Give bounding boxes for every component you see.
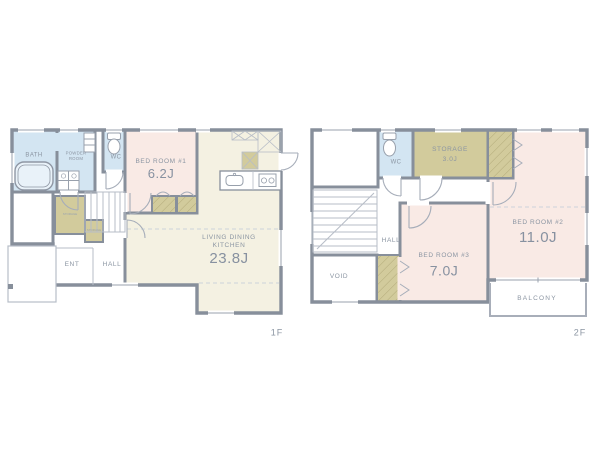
washing-machine-icon — [58, 171, 79, 190]
toilet-2f-icon — [383, 133, 396, 156]
room-storage — [413, 130, 488, 178]
hall-1f-label: HALL — [103, 261, 122, 269]
room-utility-space — [12, 192, 53, 244]
closet-1f-large-label: STORAGE — [63, 213, 78, 217]
closet-bedroom1-left — [152, 196, 176, 213]
bedroom2-size: 11.0J — [519, 229, 557, 247]
bedroom3-size: 7.0J — [430, 263, 458, 280]
floor1-plan — [8, 128, 298, 316]
wc-1f-label: WC — [111, 154, 122, 161]
bedroom1-size: 6.2J — [148, 166, 175, 182]
vanity-cabinet-icon — [84, 133, 95, 152]
floor2-tag: 2F — [574, 328, 587, 339]
ldk-size: 23.8J — [209, 250, 248, 268]
kitchen-counter — [220, 171, 281, 190]
ent-label: ENT — [65, 261, 80, 269]
ldk-name-line1: LIVING DINING — [202, 234, 256, 242]
closet-bedroom1-right — [177, 196, 197, 213]
closet-bedroom2 — [488, 130, 513, 178]
bedroom2-name: BED ROOM #2 — [512, 219, 563, 227]
ldk-name-line2: KITCHEN — [213, 242, 246, 250]
storage-size: 3.0J — [443, 156, 458, 164]
bath-label: BATH — [25, 152, 42, 159]
stairs-2f-icon — [313, 190, 377, 252]
room-2f-front — [312, 130, 378, 187]
storage-name: STORAGE — [432, 146, 468, 154]
stairs-1f-icon — [85, 192, 125, 232]
void-label: VOID — [330, 273, 348, 281]
bedroom1-name: BED ROOM #1 — [135, 158, 186, 166]
floor1-tag: 1F — [271, 328, 284, 339]
toilet-1f-icon — [108, 133, 121, 154]
hall-2f-label: HALL — [382, 237, 401, 245]
porch-outline — [8, 246, 56, 302]
closet-1f-small-label: STORAGE — [87, 229, 102, 233]
closet-bedroom3 — [377, 255, 400, 302]
bedroom3-name: BED ROOM #3 — [418, 252, 469, 260]
bathtub-icon — [15, 162, 53, 190]
wc-2f-label: WC — [391, 159, 402, 166]
balcony-label: BALCONY — [517, 295, 556, 303]
floorplan-canvas: BATH POWDER ROOM WC BED ROOM #1 6.2J LIV… — [0, 0, 600, 449]
powder-room-label: POWDER ROOM — [62, 152, 91, 163]
floorplan-drawing — [0, 0, 600, 449]
